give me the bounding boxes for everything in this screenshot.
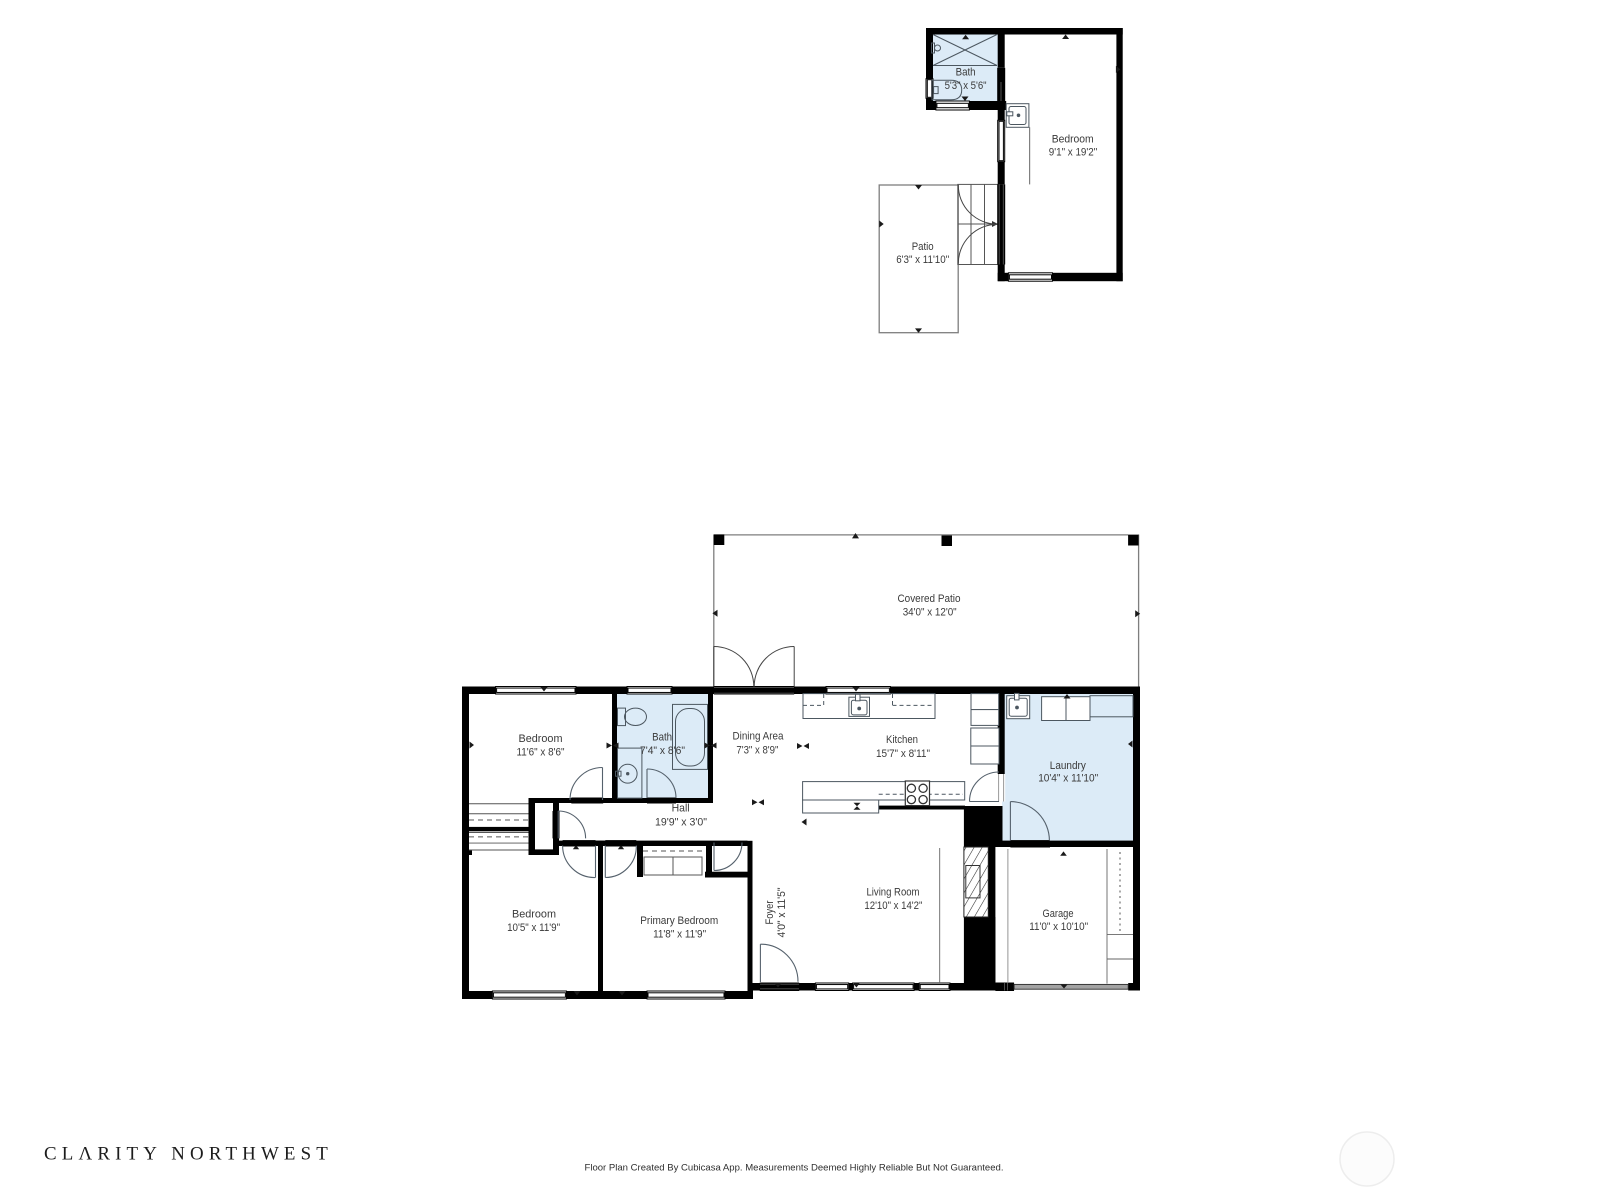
svg-text:Bath: Bath xyxy=(652,731,672,743)
svg-text:4'0" x 11'5": 4'0" x 11'5" xyxy=(776,887,788,937)
svg-text:11'8" x 11'9": 11'8" x 11'9" xyxy=(653,929,706,941)
svg-text:7'4" x 8'6": 7'4" x 8'6" xyxy=(640,745,685,757)
svg-text:Living Room: Living Room xyxy=(867,887,920,899)
svg-text:12'10" x 14'2": 12'10" x 14'2" xyxy=(864,900,922,912)
svg-text:5'3" x 5'6": 5'3" x 5'6" xyxy=(945,80,987,92)
svg-text:Hall: Hall xyxy=(672,803,690,815)
svg-text:10'4" x 11'10": 10'4" x 11'10" xyxy=(1038,772,1098,784)
svg-text:Covered Patio: Covered Patio xyxy=(898,593,961,605)
svg-text:Foyer: Foyer xyxy=(764,900,776,924)
svg-text:11'0" x 10'10": 11'0" x 10'10" xyxy=(1029,921,1088,933)
svg-text:10'5" x 11'9": 10'5" x 11'9" xyxy=(507,922,560,934)
svg-text:Bedroom: Bedroom xyxy=(1052,133,1094,145)
svg-text:Dining Area: Dining Area xyxy=(733,731,784,743)
svg-text:Patio: Patio xyxy=(912,241,934,253)
svg-text:Bath: Bath xyxy=(956,67,976,79)
svg-text:7'3" x 8'9": 7'3" x 8'9" xyxy=(736,745,778,757)
svg-text:19'9" x 3'0": 19'9" x 3'0" xyxy=(655,816,707,828)
svg-text:34'0" x 12'0": 34'0" x 12'0" xyxy=(903,607,957,619)
svg-text:Kitchen: Kitchen xyxy=(886,734,918,746)
svg-text:15'7" x 8'11": 15'7" x 8'11" xyxy=(876,748,930,760)
svg-text:9'1" x 19'2": 9'1" x 19'2" xyxy=(1049,147,1098,159)
svg-text:Bedroom: Bedroom xyxy=(512,909,556,921)
svg-text:Floor Plan Created By Cubicasa: Floor Plan Created By Cubicasa App. Meas… xyxy=(585,1163,1004,1174)
svg-text:Primary Bedroom: Primary Bedroom xyxy=(640,915,718,927)
svg-text:Bedroom: Bedroom xyxy=(519,733,563,745)
svg-text:Laundry: Laundry xyxy=(1050,760,1087,772)
svg-text:CLΛRITY NORTHWEST: CLΛRITY NORTHWEST xyxy=(44,1144,333,1165)
svg-text:6'3" x 11'10": 6'3" x 11'10" xyxy=(896,254,949,266)
svg-text:Garage: Garage xyxy=(1043,908,1074,920)
svg-text:11'6" x 8'6": 11'6" x 8'6" xyxy=(517,747,565,759)
